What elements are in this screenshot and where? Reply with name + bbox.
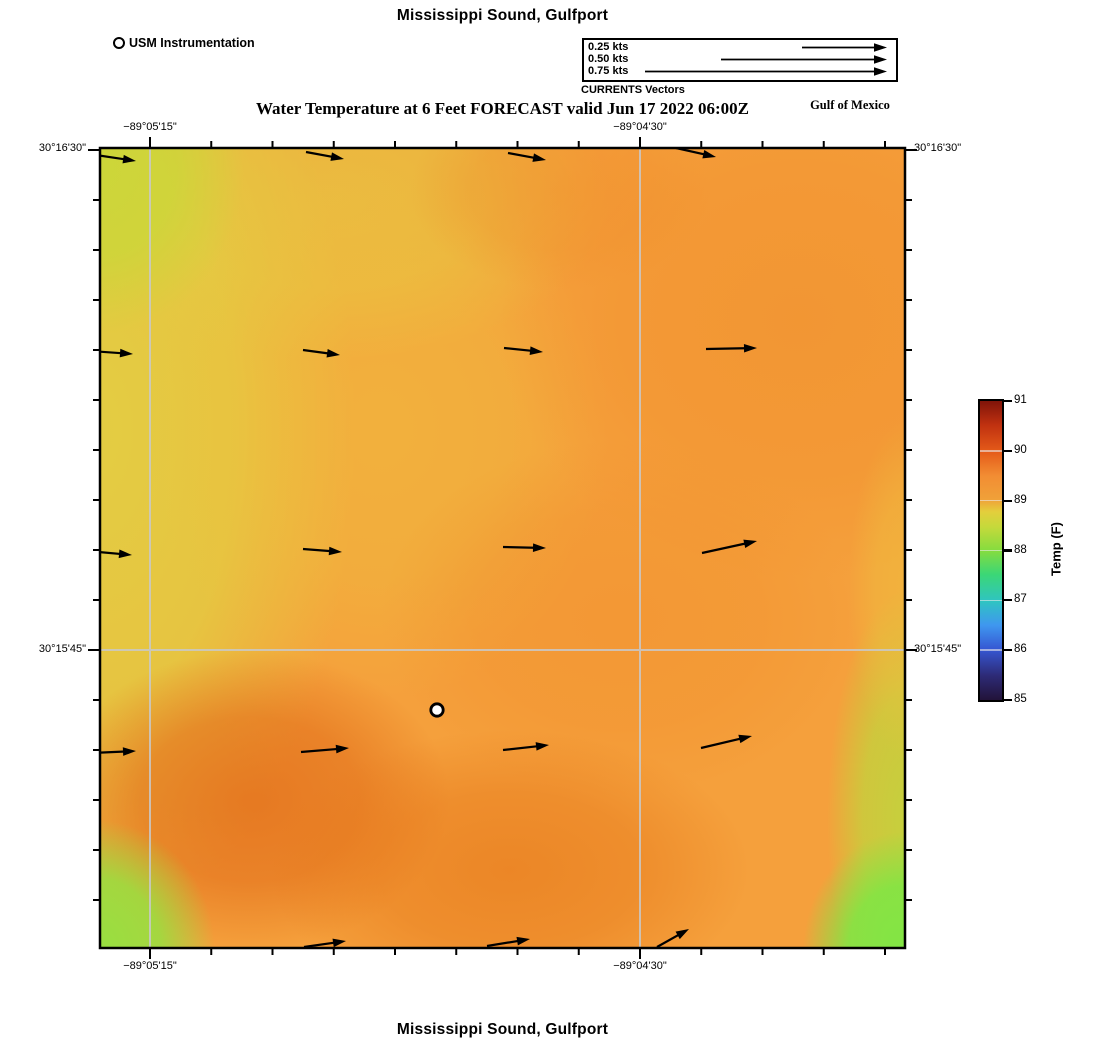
colorbar-tick <box>1004 649 1012 651</box>
instrument-marker <box>431 704 443 716</box>
colorbar-gridline <box>980 500 1002 502</box>
heat-field <box>0 0 1100 1050</box>
y-tick-right-1: 30°16'30" <box>914 142 994 154</box>
bottom-title: Mississippi Sound, Gulfport <box>100 1021 905 1039</box>
x-tick-top-2: −89°04'30" <box>570 121 710 133</box>
colorbar-tick-label: 91 <box>1014 394 1044 406</box>
colorbar-gridline <box>980 649 1002 651</box>
temperature-colorbar: 85868788899091 <box>978 399 1004 702</box>
colorbar-tick-label: 87 <box>1014 593 1044 605</box>
colorbar-tick-label: 90 <box>1014 444 1044 456</box>
colorbar-gridline <box>980 450 1002 452</box>
colorbar-tick <box>1004 450 1012 452</box>
colorbar-tick <box>1004 400 1012 402</box>
colorbar-gridline <box>980 600 1002 602</box>
forecast-plot-page: Mississippi Sound, Gulfport USM Instrume… <box>0 0 1100 1050</box>
colorbar-tick <box>1004 599 1012 601</box>
y-tick-left-1: 30°16'30" <box>6 142 86 154</box>
colorbar-tick-label: 85 <box>1014 693 1044 705</box>
temperature-map <box>0 0 1100 1050</box>
colorbar-tick <box>1004 500 1012 502</box>
colorbar-gridline <box>980 550 1002 552</box>
x-tick-bottom-2: −89°04'30" <box>570 960 710 972</box>
colorbar-tick-label: 88 <box>1014 544 1044 556</box>
colorbar-tick <box>1004 549 1012 551</box>
colorbar-tick <box>1004 699 1012 701</box>
x-tick-top-1: −89°05'15" <box>80 121 220 133</box>
colorbar-title: Temp (F) <box>1049 522 1064 576</box>
y-tick-left-2: 30°15'45" <box>6 643 86 655</box>
colorbar-tick-label: 86 <box>1014 643 1044 655</box>
x-tick-bottom-1: −89°05'15" <box>80 960 220 972</box>
colorbar-tick-label: 89 <box>1014 494 1044 506</box>
